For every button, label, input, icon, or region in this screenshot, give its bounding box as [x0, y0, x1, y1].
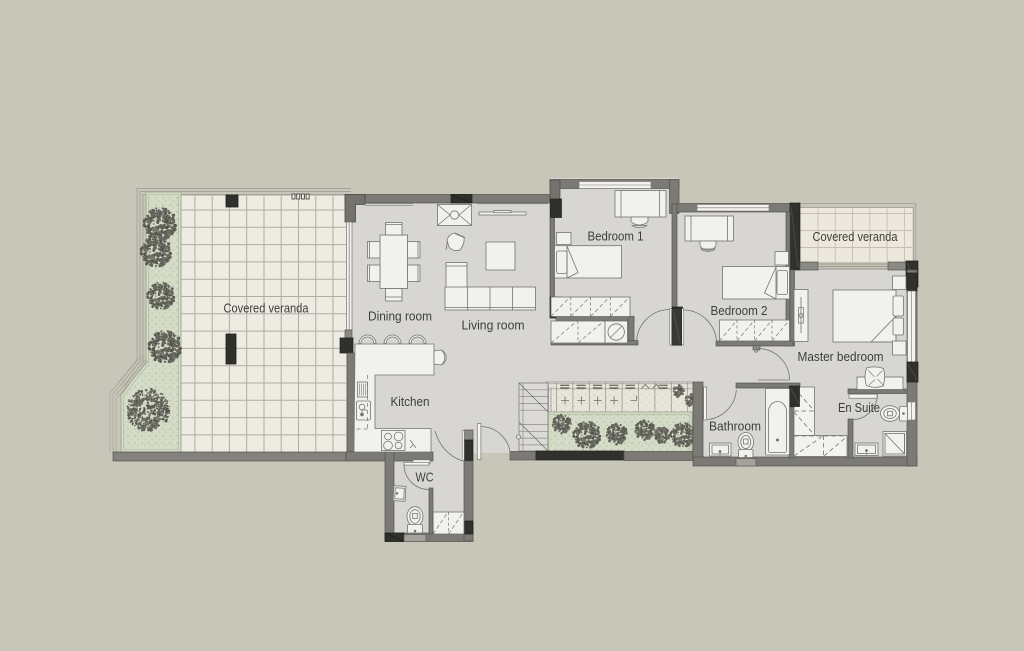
svg-text:Kitchen: Kitchen: [391, 394, 430, 409]
svg-text:En Suite: En Suite: [838, 400, 880, 415]
svg-text:Bedroom 1: Bedroom 1: [588, 229, 644, 244]
svg-text:Covered veranda: Covered veranda: [224, 301, 310, 316]
svg-text:Living room: Living room: [462, 318, 525, 333]
svg-text:Bedroom 2: Bedroom 2: [711, 303, 768, 318]
svg-text:WC: WC: [416, 470, 434, 485]
svg-text:Dining room: Dining room: [368, 309, 432, 324]
svg-text:Covered veranda: Covered veranda: [813, 229, 899, 244]
svg-text:Bathroom: Bathroom: [709, 419, 761, 434]
svg-text:Master bedroom: Master bedroom: [798, 349, 884, 364]
